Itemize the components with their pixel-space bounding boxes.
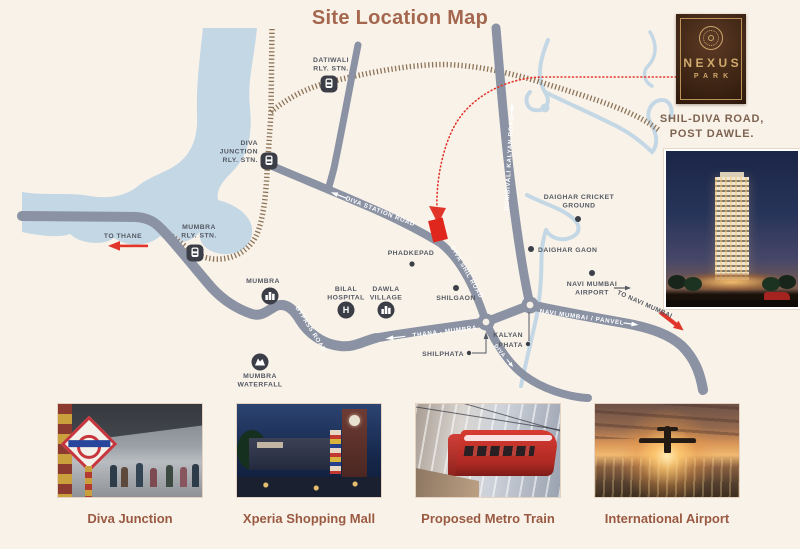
cricket-ground-dot xyxy=(575,216,581,222)
shilphata-label: SHILPHATA xyxy=(422,351,464,358)
gallery-card-metro-train: Proposed Metro Train xyxy=(415,403,561,526)
svg-text:VILLAGE: VILLAGE xyxy=(370,295,403,302)
gallery-caption: Proposed Metro Train xyxy=(415,511,561,526)
street xyxy=(237,477,381,497)
logo-subtitle: PARK xyxy=(689,73,733,80)
road-dombivali-kalyan xyxy=(496,28,530,305)
svg-text:HOSPITAL: HOSPITAL xyxy=(327,295,364,302)
logo-medallion-icon xyxy=(699,26,723,50)
commuter xyxy=(136,463,143,487)
commuter xyxy=(192,464,199,487)
svg-text:AIRPORT: AIRPORT xyxy=(575,290,609,297)
diva-junction-label: DIVA xyxy=(240,140,258,147)
site-location-map-page: Site Location Map xyxy=(0,0,800,549)
roads-layer xyxy=(22,28,703,398)
airplane-silhouette xyxy=(664,426,671,453)
shilphata-connector xyxy=(467,332,489,355)
sign-post xyxy=(85,466,92,497)
gallery-card-international-airport: International Airport xyxy=(594,403,740,526)
logo-name: NEXUS xyxy=(680,56,742,70)
daighar-gaon-label: DAIGHAR GAON xyxy=(538,247,597,254)
mumbra-station-label: MUMBRA xyxy=(182,224,216,231)
phadkepad-dot xyxy=(409,261,414,266)
svg-text:DIVA SHIL ROAD: DIVA SHIL ROAD xyxy=(449,245,485,300)
cricket-ground-label: DAIGHAR CRICKET xyxy=(544,194,615,201)
roundabout-kalyan-phata-center xyxy=(527,302,534,309)
mumbra-town-icon xyxy=(262,288,279,305)
red-car xyxy=(764,292,790,300)
logo-frame: NEXUS PARK xyxy=(680,18,742,100)
mumbra-waterfall-icon xyxy=(252,354,269,371)
svg-text:WATERFALL: WATERFALL xyxy=(237,382,282,389)
road-labels: THANA - MUMBRA NAVI MUMBAI / PANVEL DOMB… xyxy=(294,103,639,370)
daighar-gaon-dot xyxy=(528,246,534,252)
to-thane-label: TO THANE xyxy=(104,233,142,240)
shilgaon-label: SHILGAON xyxy=(436,295,475,302)
nexus-park-logo: NEXUS PARK xyxy=(676,14,746,104)
stream-ne-3 xyxy=(645,32,656,86)
svg-text:GROUND: GROUND xyxy=(563,203,596,210)
runway-streaks xyxy=(595,458,739,497)
red-train xyxy=(455,430,559,476)
phadkepad-label: PHADKEPAD xyxy=(388,250,435,257)
bilal-hospital-icon: H xyxy=(338,302,355,319)
kalyan-phata-dot xyxy=(526,342,530,346)
address-line2: POST DAWLE. xyxy=(634,127,790,142)
tree xyxy=(762,277,780,291)
sign-name-band xyxy=(68,440,110,447)
metro-train-photo xyxy=(415,403,561,498)
svg-text:RLY. STN.: RLY. STN. xyxy=(222,157,258,164)
gallery-caption: Xperia Shopping Mall xyxy=(236,511,382,526)
site-marker-group xyxy=(428,77,676,242)
clock-icon xyxy=(349,415,360,426)
commuter xyxy=(150,468,157,487)
ground xyxy=(666,300,798,307)
svg-text:RLY. STN.: RLY. STN. xyxy=(313,66,349,73)
stream-ne-1 xyxy=(527,40,548,110)
dawla-village-icon xyxy=(378,302,395,319)
datiwali-station-icon xyxy=(321,76,338,93)
signage-strip xyxy=(330,430,341,474)
svg-text:JUNCTION: JUNCTION xyxy=(220,149,258,156)
diva-shil-road-label: DIVA SHIL ROAD xyxy=(449,245,485,300)
kalyan-phata-label: KALYAN xyxy=(493,332,523,339)
pond xyxy=(541,104,550,113)
commuter xyxy=(110,465,117,487)
svg-text:H: H xyxy=(343,305,350,315)
project-address: SHIL-DIVA ROAD, POST DAWLE. xyxy=(634,112,790,142)
commuter xyxy=(121,467,128,487)
svg-text:DIVA STATION ROAD: DIVA STATION ROAD xyxy=(344,195,415,228)
gallery-card-diva-junction: Diva Junction xyxy=(57,403,203,526)
bilal-hospital-label: BILAL xyxy=(335,286,357,293)
svg-text:PHATA: PHATA xyxy=(498,342,523,349)
diva-junction-station-icon xyxy=(261,153,278,170)
mumbra-label: MUMBRA xyxy=(246,278,280,285)
building-render-photo xyxy=(664,149,800,309)
commuter xyxy=(180,467,187,487)
road-navi-mumbai-highway xyxy=(530,305,703,390)
bypass-road-label: BYPASS ROAD xyxy=(294,305,328,353)
svg-text:BYPASS ROAD: BYPASS ROAD xyxy=(294,305,328,353)
dawla-village-label: DAWLA xyxy=(372,286,399,293)
gallery-caption: Diva Junction xyxy=(57,511,203,526)
xperia-mall-photo xyxy=(236,403,382,498)
building-night-scene xyxy=(666,151,798,307)
mall-sign xyxy=(257,442,283,448)
shilgaon-dot xyxy=(453,285,459,291)
diva-junction-photo xyxy=(57,403,203,498)
roundabout-shilphata-center xyxy=(483,319,490,326)
mumbra-station-icon xyxy=(187,245,204,262)
gallery-card-xperia-mall: Xperia Shopping Mall xyxy=(236,403,382,526)
up-arrow-icon xyxy=(509,103,514,110)
tree xyxy=(778,275,796,289)
airport-photo xyxy=(594,403,740,498)
airport-label: NAVI MUMBAI xyxy=(567,281,618,288)
commuter xyxy=(166,465,173,487)
datiwali-label: DATIWALI xyxy=(313,57,349,64)
address-line1: SHIL-DIVA ROAD, xyxy=(634,112,790,127)
gallery-caption: International Airport xyxy=(594,511,740,526)
airport-dot xyxy=(589,270,595,276)
tree xyxy=(684,277,702,291)
shilphata-dot xyxy=(467,351,471,355)
svg-text:RLY. STN.: RLY. STN. xyxy=(181,233,217,240)
tower-building xyxy=(715,177,749,281)
mumbra-waterfall-label: MUMBRA xyxy=(243,373,277,380)
